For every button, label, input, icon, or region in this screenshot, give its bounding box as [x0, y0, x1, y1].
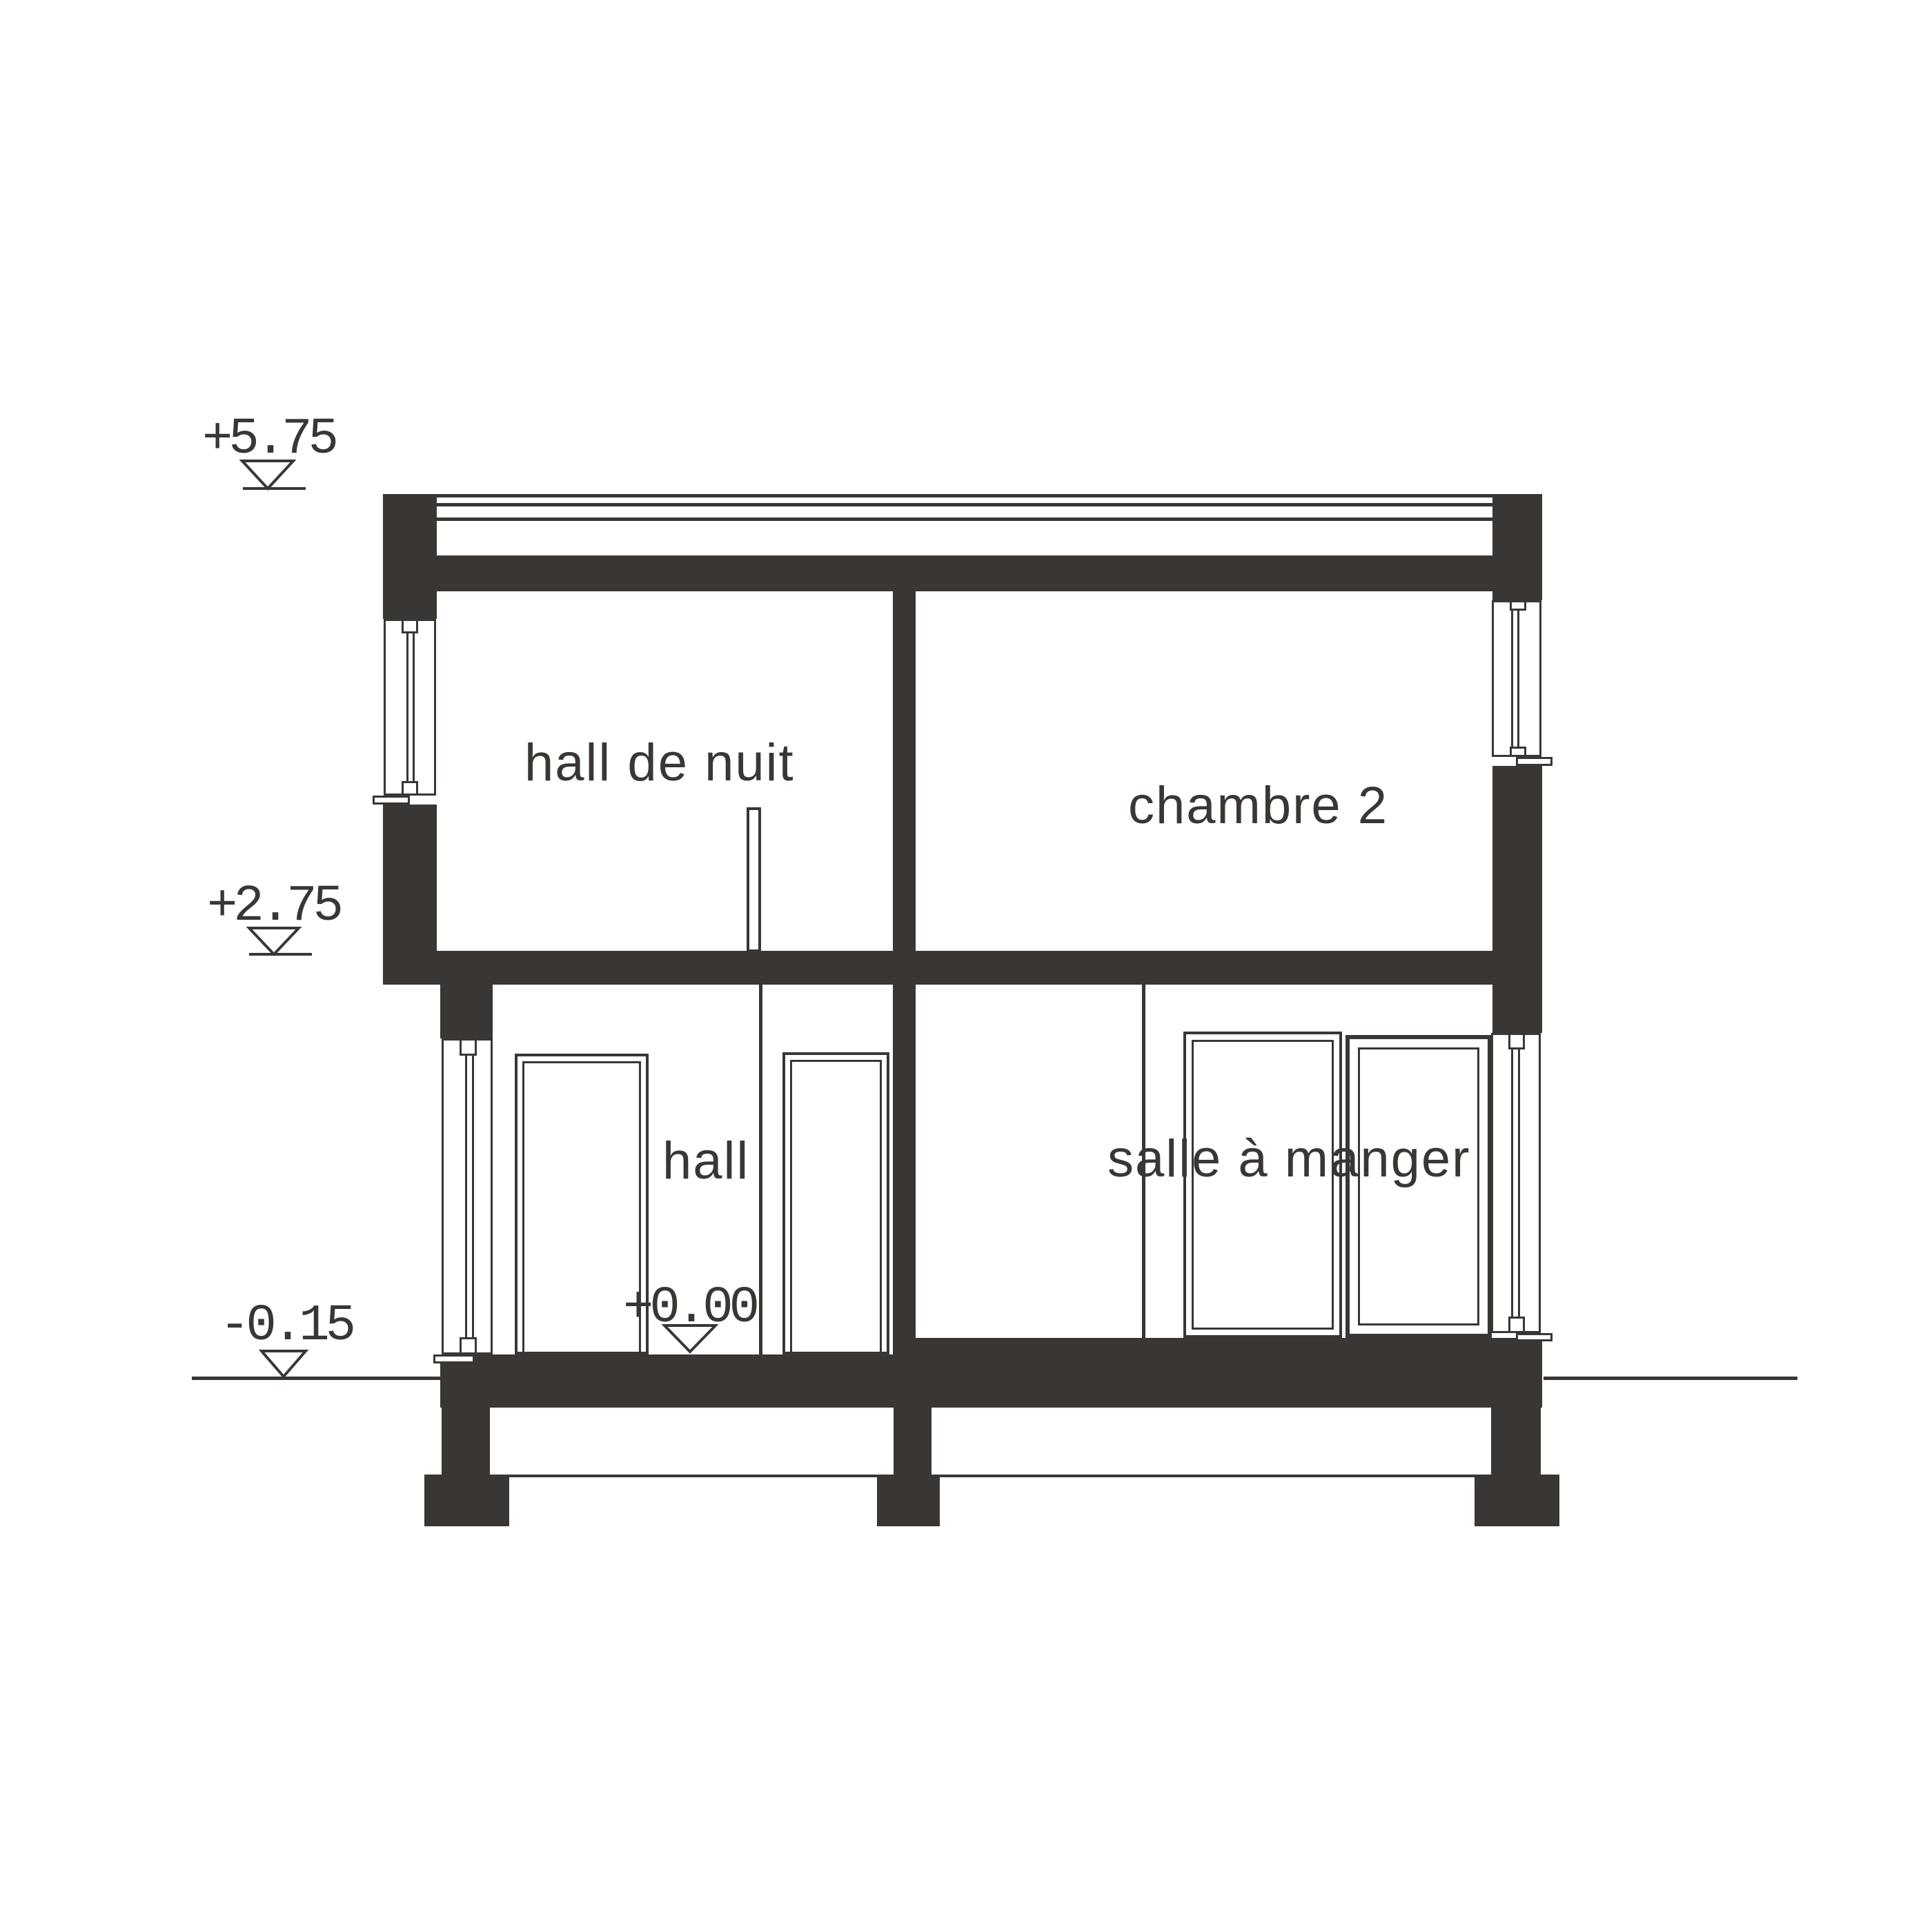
footing-left [424, 1475, 509, 1526]
footing-right [1475, 1475, 1559, 1526]
level-m015: -0.15 [219, 1301, 495, 1363]
ground-line-left [192, 1377, 442, 1380]
frame-block-ur-top [1510, 600, 1526, 611]
glass-lower-left [465, 1056, 474, 1337]
floor-slab [440, 1354, 1542, 1408]
door-leaf-upper [747, 807, 761, 952]
foundation-wall-right [1491, 1408, 1541, 1477]
soil-line-left [509, 1475, 877, 1477]
building-section-drawing: +5.75+2.75+0.00-0.15hall de nuitchambre … [0, 0, 1932, 1932]
roof-line-mid [437, 503, 1492, 506]
sill-upper-left [373, 796, 410, 805]
soil-line-right [940, 1475, 1475, 1477]
level-275: +2.75 [207, 881, 483, 943]
frame-block-lr-bot [1508, 1317, 1525, 1333]
foundation-wall-left [442, 1408, 490, 1477]
wall-right-upper [1492, 494, 1542, 600]
mid-floor-slab [383, 951, 1492, 985]
level-575: +5.75 [202, 414, 478, 476]
sill-upper-right [1516, 757, 1552, 766]
frame-block-ur-bot [1510, 747, 1526, 757]
sill-lower-right [1516, 1333, 1552, 1341]
level-000: +0.00 [623, 1283, 899, 1345]
threshold-salle [911, 1338, 1542, 1356]
frame-block-ul-bot [402, 781, 418, 796]
ground-line-right [1544, 1377, 1797, 1380]
room-salle-a-manger: salle à manger [1107, 1133, 1590, 1199]
roof-line-low [437, 517, 1492, 521]
glass-upper-right [1511, 611, 1519, 747]
room-hall-de-nuit: hall de nuit [524, 737, 1007, 802]
ceiling-slab [437, 555, 1492, 591]
footing-center [877, 1475, 940, 1526]
room-hall: hall [662, 1135, 1145, 1201]
frame-block-lr-top [1508, 1033, 1525, 1049]
wall-left-upper [383, 494, 437, 619]
foundation-pier-center [894, 1408, 931, 1477]
frame-block-ul-top [402, 619, 418, 633]
glass-upper-left [406, 633, 415, 781]
lintel-left-ground [440, 985, 493, 1038]
roof-line-top [383, 494, 1542, 497]
room-chambre-2: chambre 2 [1128, 780, 1611, 845]
frame-block-ll-top [460, 1038, 477, 1056]
